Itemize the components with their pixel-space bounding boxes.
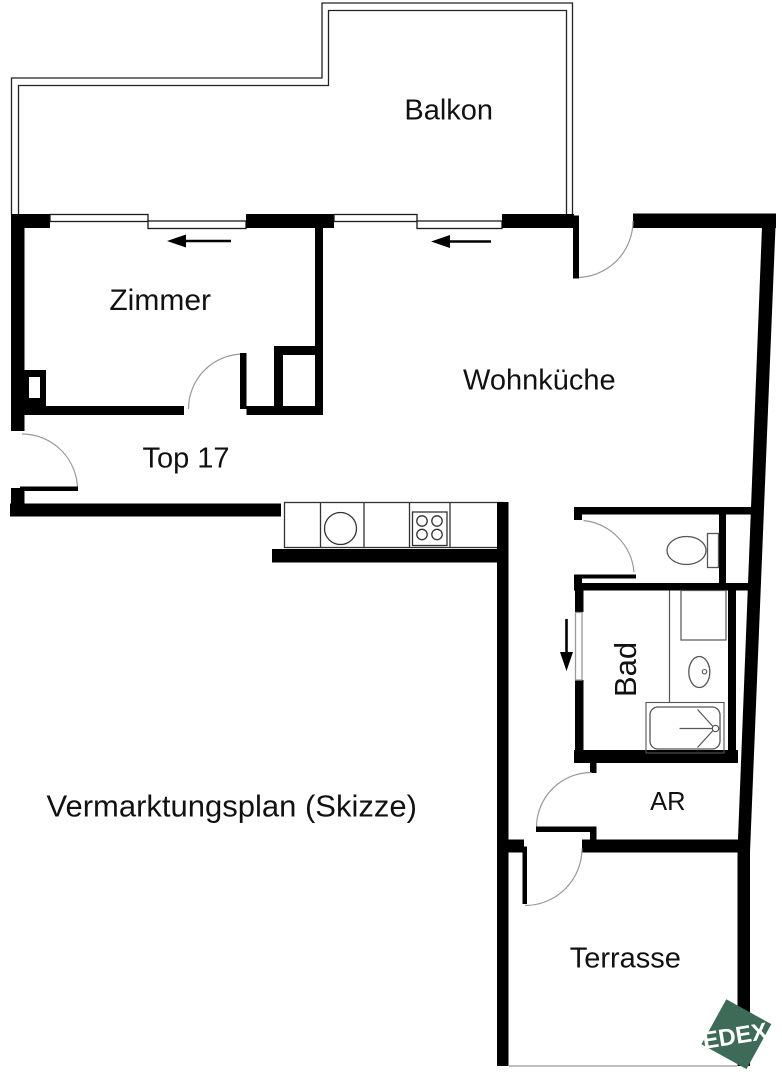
svg-text:AR: AR [650, 788, 685, 816]
svg-text:Wohnküche: Wohnküche [463, 365, 616, 397]
svg-text:Terrasse: Terrasse [570, 943, 681, 975]
svg-text:Top 17: Top 17 [142, 443, 229, 475]
svg-text:Balkon: Balkon [404, 95, 493, 127]
svg-text:Bad: Bad [608, 642, 643, 697]
svg-text:Vermarktungsplan (Skizze): Vermarktungsplan (Skizze) [47, 789, 417, 824]
svg-text:Zimmer: Zimmer [109, 284, 211, 317]
